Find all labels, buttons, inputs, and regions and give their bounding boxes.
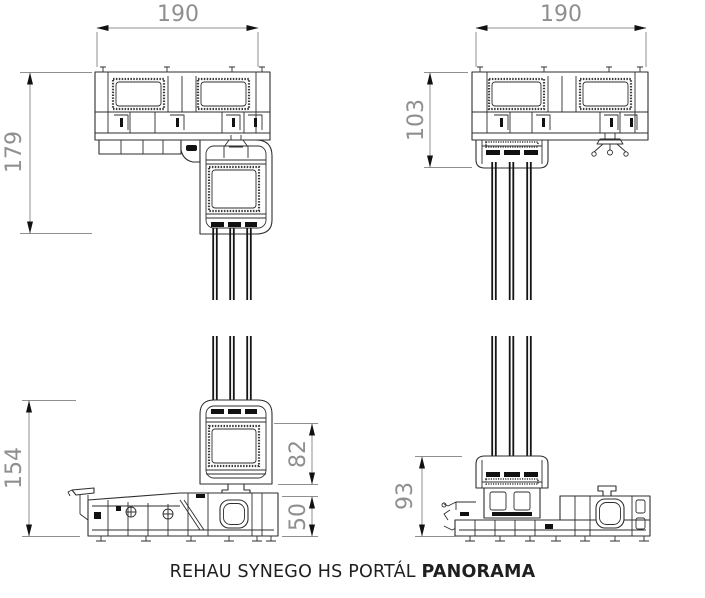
glazing-top-left — [213, 228, 251, 300]
section-bottom-right: 93 — [393, 336, 650, 541]
technical-drawing-canvas: 190 179 — [0, 0, 705, 598]
dimension-103: 103 — [404, 73, 472, 168]
dim-label-93: 93 — [393, 482, 418, 510]
sill-profile — [68, 488, 278, 541]
dim-label-154: 154 — [2, 447, 27, 489]
dim-label-179: 179 — [2, 131, 27, 173]
section-top-right: 190 103 — [404, 2, 648, 300]
glazing-top-right — [492, 162, 531, 300]
section-bottom-left: 154 82 50 — [2, 336, 318, 541]
glazing-clamp — [476, 140, 548, 168]
dim-label-103: 103 — [404, 99, 429, 141]
dim-label-190-left: 190 — [157, 2, 199, 27]
dimension-179: 179 — [2, 73, 92, 234]
section-top-left: 190 179 — [2, 2, 272, 300]
dimension-93: 93 — [393, 457, 462, 537]
caption-bold: PANORAMA — [421, 562, 535, 582]
dimension-154: 154 — [2, 401, 80, 537]
glazing-bottom-right — [492, 336, 531, 470]
dim-label-190-right: 190 — [540, 2, 582, 27]
glazing-clamp — [442, 456, 548, 530]
caption-regular: REHAU SYNEGO HS PORTÁL — [170, 562, 416, 582]
dimension-82: 82 — [274, 424, 318, 485]
product-caption: REHAU SYNEGO HS PORTÁLPANORAMA — [0, 562, 705, 582]
dimension-190-top-left: 190 — [97, 2, 258, 67]
dim-label-50: 50 — [286, 503, 311, 531]
dimension-190-top-right: 190 — [476, 2, 646, 67]
dim-label-82: 82 — [286, 440, 311, 468]
sash-profile — [200, 400, 272, 496]
frame-profile — [472, 67, 648, 140]
dimension-50: 50 — [282, 497, 318, 537]
sash-profile — [200, 135, 272, 234]
profile-drawing-page: 190 179 — [0, 0, 705, 598]
